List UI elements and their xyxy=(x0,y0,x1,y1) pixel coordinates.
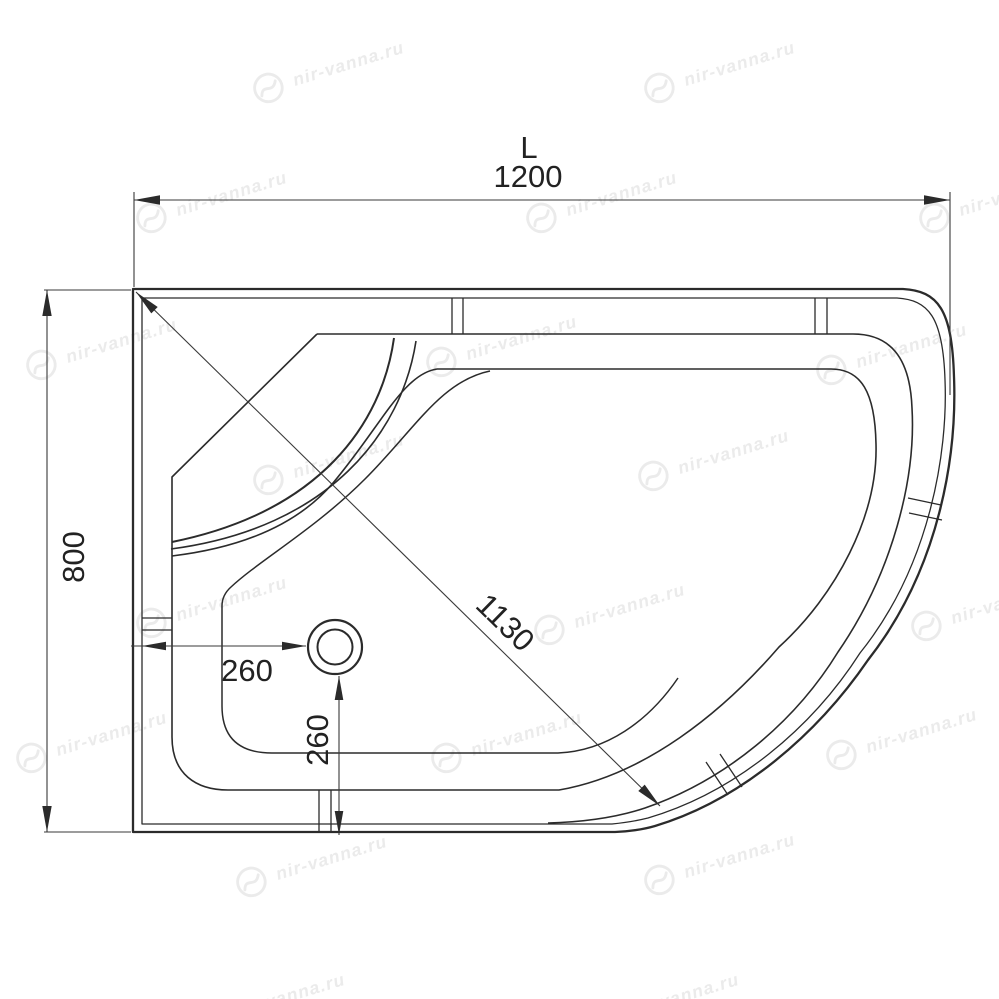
panel-joints xyxy=(142,298,942,831)
panel-joint-top-1 xyxy=(452,298,463,334)
shower-tray-plan-drawing: nir-vanna.runir-vanna.runir-vanna.runir-… xyxy=(0,0,999,999)
panel-joint-top-2 xyxy=(815,298,827,334)
label-depth: 800 xyxy=(56,531,91,583)
drain-inner-circle xyxy=(318,630,353,665)
dimension-arrowheads xyxy=(42,195,950,835)
arrow-drain-y-top xyxy=(335,676,344,700)
panel-joint-left xyxy=(142,618,172,630)
tray-rim xyxy=(172,334,876,790)
panel-joint-bottom xyxy=(319,790,331,831)
arrow-drain-x-right xyxy=(282,642,306,651)
wall-inner-edge xyxy=(317,334,912,823)
label-length: 1200 xyxy=(494,159,563,194)
basin-outline xyxy=(222,371,678,753)
label-drain-offset-y: 260 xyxy=(300,714,335,766)
label-diagonal: 1130 xyxy=(469,587,541,659)
panel-joint-curve-upper xyxy=(908,498,942,520)
label-drain-offset-x: 260 xyxy=(221,653,273,688)
rim-corner-wrap xyxy=(172,369,437,556)
technical-drawing-canvas: L 1200 800 1130 260 260 xyxy=(0,0,999,999)
arrow-depth-top xyxy=(42,290,51,316)
drain-outer-circle xyxy=(308,620,362,674)
arrow-depth-bottom xyxy=(42,806,51,832)
arrow-diagonal-top xyxy=(136,292,158,313)
tray-outline-outer xyxy=(133,289,954,832)
arrow-diagonal-bottom xyxy=(638,785,660,806)
arrow-drain-x-left xyxy=(142,642,166,651)
arrow-length-right xyxy=(924,195,950,204)
arrow-length-left xyxy=(134,195,160,204)
